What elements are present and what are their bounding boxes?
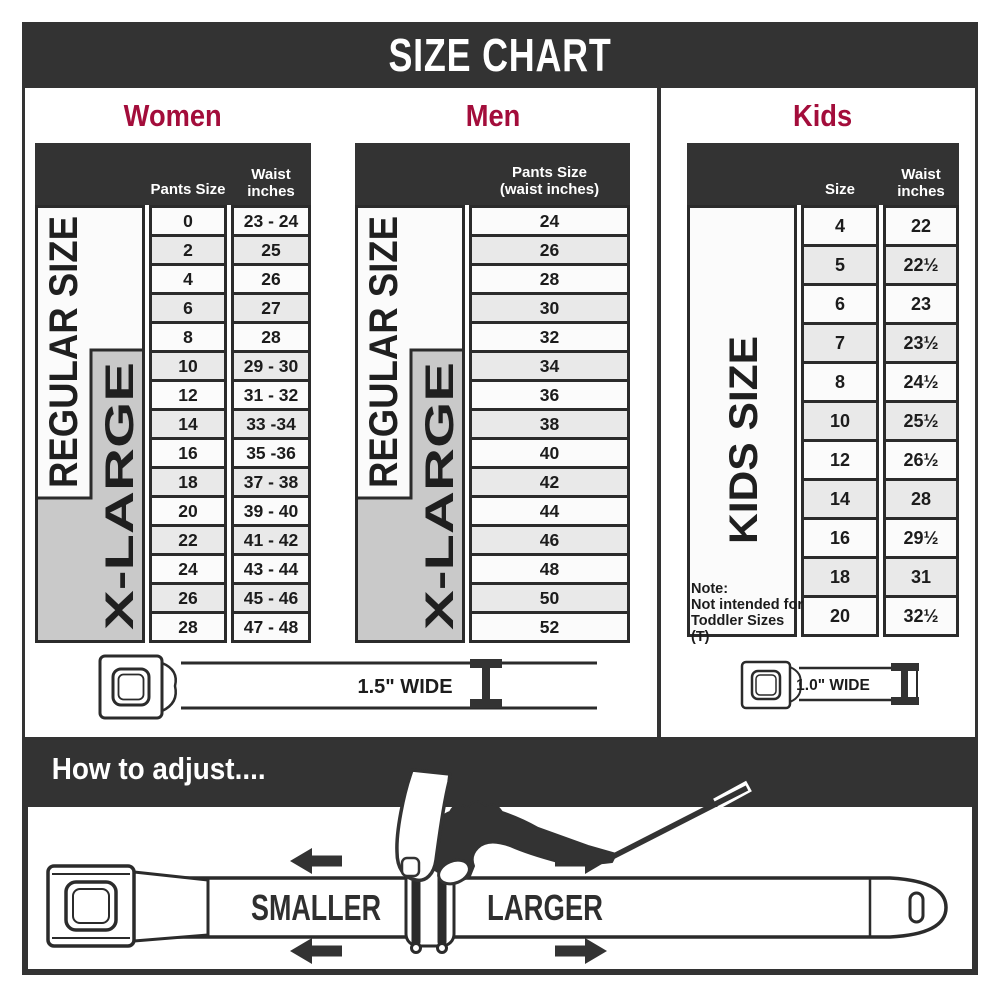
pants-size-cell: 22 [149, 524, 227, 556]
table-row: 14 33 -34 [149, 408, 311, 440]
belt-width-label: 1.0" WIDE [796, 677, 870, 694]
table-row: 8 24½ [801, 361, 959, 403]
table-row: 48 [469, 553, 630, 585]
size-cell: 14 [801, 478, 879, 520]
table-row: 8 28 [149, 321, 311, 353]
kids-size-header: Size [801, 181, 879, 198]
pants-size-cell: 32 [469, 321, 630, 353]
pants-size-cell: 24 [149, 553, 227, 585]
table-row: 36 [469, 379, 630, 411]
table-row: 40 [469, 437, 630, 469]
waist-cell: 28 [231, 321, 311, 353]
kids-note: Note: Not intended for Toddler Sizes (T) [691, 581, 803, 645]
pants-size-cell: 26 [149, 582, 227, 614]
pants-size-cell: 30 [469, 292, 630, 324]
size-cell: 6 [801, 283, 879, 325]
kids-size-band-illustration: KIDS SIZE [687, 205, 797, 637]
table-row: 28 47 - 48 [149, 611, 311, 643]
belt-width-label: 1.5" WIDE [357, 676, 452, 698]
table-row: 6 27 [149, 292, 311, 324]
pants-size-cell: 36 [469, 379, 630, 411]
pants-size-cell: 8 [149, 321, 227, 353]
waist-cell: 33 -34 [231, 408, 311, 440]
table-row: 50 [469, 582, 630, 614]
waist-cell: 37 - 38 [231, 466, 311, 498]
pants-size-cell: 28 [469, 263, 630, 295]
kids-table-header: Size Waist inches [687, 143, 959, 205]
men-size-band-illustration: REGULAR SIZE X-LARGE [355, 205, 465, 643]
waist-cell: 43 - 44 [231, 553, 311, 585]
waist-cell: 23 - 24 [231, 205, 311, 237]
men-pants-size-header: Pants Size (waist inches) [469, 164, 630, 198]
table-row: 26 [469, 234, 630, 266]
table-row: 6 23 [801, 283, 959, 325]
table-row: 46 [469, 524, 630, 556]
women-heading: Women [35, 98, 311, 134]
size-cell: 16 [801, 517, 879, 559]
men-table-header: Pants Size (waist inches) [355, 143, 630, 205]
table-row: 38 [469, 408, 630, 440]
women-table-header: Pants Size Waist inches [35, 143, 311, 205]
women-size-band-illustration: REGULAR SIZE X-LARGE [35, 205, 145, 643]
waist-cell: 22 [883, 205, 959, 247]
kids-waist-header: Waist inches [883, 166, 959, 200]
pants-size-cell: 48 [469, 553, 630, 585]
table-row: 5 22½ [801, 244, 959, 286]
pants-size-cell: 12 [149, 379, 227, 411]
pants-size-cell: 16 [149, 437, 227, 469]
table-row: 18 31 [801, 556, 959, 598]
women-table-body: 0 23 - 24 2 25 4 26 6 27 [149, 205, 311, 643]
waist-cell: 32½ [883, 595, 959, 637]
table-row: 2 25 [149, 234, 311, 266]
adjust-band: How to adjust.... [22, 737, 978, 801]
waist-cell: 26½ [883, 439, 959, 481]
pants-size-cell: 34 [469, 350, 630, 382]
kids-heading: Kids [687, 98, 959, 134]
waist-cell: 35 -36 [231, 437, 311, 469]
size-cell: 7 [801, 322, 879, 364]
women-regular-size-label: REGULAR SIZE [42, 216, 86, 488]
waist-cell: 31 [883, 556, 959, 598]
title-band: SIZE CHART [22, 22, 978, 88]
table-row: 12 31 - 32 [149, 379, 311, 411]
table-row: 30 [469, 292, 630, 324]
size-chart-page: SIZE CHART Women Men Kids Pants Size Wai… [0, 0, 1000, 1000]
waist-cell: 41 - 42 [231, 524, 311, 556]
pants-size-cell: 4 [149, 263, 227, 295]
pants-size-cell: 20 [149, 495, 227, 527]
table-row: 34 [469, 350, 630, 382]
pants-size-cell: 0 [149, 205, 227, 237]
table-row: 12 26½ [801, 439, 959, 481]
size-cell: 5 [801, 244, 879, 286]
table-row: 0 23 - 24 [149, 205, 311, 237]
waist-cell: 23½ [883, 322, 959, 364]
women-xlarge-label: X-LARGE [98, 362, 142, 630]
pants-size-cell: 10 [149, 350, 227, 382]
waist-cell: 31 - 32 [231, 379, 311, 411]
adjustment-panel [22, 801, 978, 975]
kids-table-body: 4 22 5 22½ 6 23 7 23½ [801, 205, 959, 637]
pants-size-cell: 52 [469, 611, 630, 643]
pants-size-cell: 50 [469, 582, 630, 614]
table-row: 16 29½ [801, 517, 959, 559]
pants-size-cell: 42 [469, 466, 630, 498]
table-row: 10 25½ [801, 400, 959, 442]
pants-size-cell: 18 [149, 466, 227, 498]
men-heading: Men [355, 98, 630, 134]
kids-belt-illustration: 1.0" WIDE [727, 658, 937, 714]
size-cell: 10 [801, 400, 879, 442]
i-beam-width-marker [470, 659, 502, 708]
how-to-adjust-heading: How to adjust.... [22, 751, 266, 787]
table-row: 26 45 - 46 [149, 582, 311, 614]
men-size-table: Pants Size (waist inches) REGULAR SIZE X… [355, 143, 630, 643]
women-waist-header: Waist inches [231, 166, 311, 200]
table-row: 42 [469, 466, 630, 498]
table-row: 18 37 - 38 [149, 466, 311, 498]
table-row: 24 [469, 205, 630, 237]
table-row: 20 32½ [801, 595, 959, 637]
pants-size-cell: 46 [469, 524, 630, 556]
table-row: 24 43 - 44 [149, 553, 311, 585]
pants-size-cell: 28 [149, 611, 227, 643]
table-row: 7 23½ [801, 322, 959, 364]
men-regular-size-label: REGULAR SIZE [362, 216, 406, 488]
waist-cell: 24½ [883, 361, 959, 403]
table-row: 4 22 [801, 205, 959, 247]
panel-divider [657, 88, 661, 737]
i-beam-width-marker [891, 663, 919, 705]
table-row: 22 41 - 42 [149, 524, 311, 556]
size-cell: 4 [801, 205, 879, 247]
kids-size-band-label: KIDS SIZE [722, 336, 766, 544]
pants-size-cell: 38 [469, 408, 630, 440]
table-row: 14 28 [801, 478, 959, 520]
table-row: 4 26 [149, 263, 311, 295]
pants-size-cell: 6 [149, 292, 227, 324]
table-row: 32 [469, 321, 630, 353]
table-row: 10 29 - 30 [149, 350, 311, 382]
pants-size-cell: 14 [149, 408, 227, 440]
waist-cell: 39 - 40 [231, 495, 311, 527]
waist-cell: 27 [231, 292, 311, 324]
waist-cell: 25½ [883, 400, 959, 442]
waist-cell: 29½ [883, 517, 959, 559]
waist-cell: 23 [883, 283, 959, 325]
women-pants-size-header: Pants Size [149, 181, 227, 198]
kids-size-table: Size Waist inches KIDS SIZE 4 22 5 22½ [687, 143, 959, 637]
table-row: 16 35 -36 [149, 437, 311, 469]
table-row: 28 [469, 263, 630, 295]
pants-size-cell: 2 [149, 234, 227, 266]
women-size-table: Pants Size Waist inches REGULAR SIZE X-L… [35, 143, 311, 643]
waist-cell: 22½ [883, 244, 959, 286]
buckle-latch-icon [162, 663, 176, 711]
table-row: 44 [469, 495, 630, 527]
waist-cell: 45 - 46 [231, 582, 311, 614]
pants-size-cell: 40 [469, 437, 630, 469]
table-row: 20 39 - 40 [149, 495, 311, 527]
size-cell: 18 [801, 556, 879, 598]
waist-cell: 28 [883, 478, 959, 520]
waist-cell: 29 - 30 [231, 350, 311, 382]
page-title: SIZE CHART [388, 28, 611, 82]
waist-cell: 26 [231, 263, 311, 295]
size-cell: 20 [801, 595, 879, 637]
table-row: 52 [469, 611, 630, 643]
men-xlarge-label: X-LARGE [418, 362, 462, 630]
pants-size-cell: 26 [469, 234, 630, 266]
size-cell: 12 [801, 439, 879, 481]
pants-size-cell: 44 [469, 495, 630, 527]
waist-cell: 25 [231, 234, 311, 266]
men-table-body: 24 26 28 30 32 34 [469, 205, 630, 643]
waist-cell: 47 - 48 [231, 611, 311, 643]
pants-size-cell: 24 [469, 205, 630, 237]
adult-belt-illustration: 1.5" WIDE [85, 650, 645, 730]
size-cell: 8 [801, 361, 879, 403]
